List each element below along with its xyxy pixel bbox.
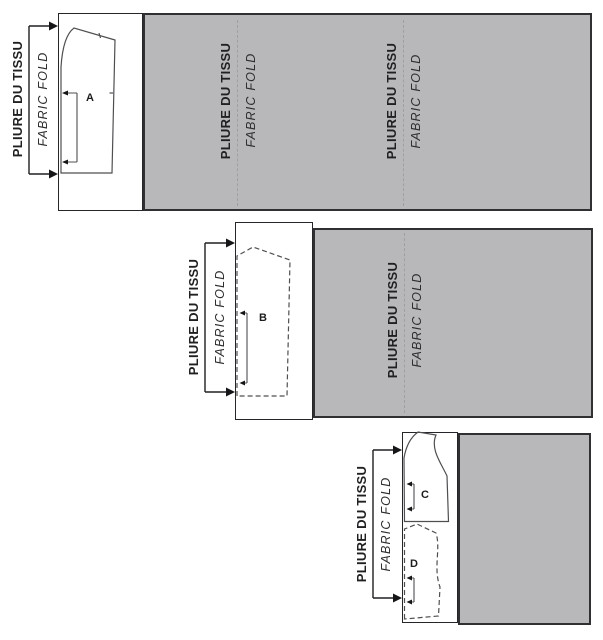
fold-arrow-icon xyxy=(393,594,402,603)
fold-arrow-icon xyxy=(49,170,58,179)
fold-bracket-2 xyxy=(205,243,226,392)
cutting-layout-diagram: PLIURE DU TISSU FABRIC FOLD PLIURE DU TI… xyxy=(0,0,603,640)
fold-label-en: FABRIC FOLD xyxy=(378,444,394,604)
fold-dash-line-1b xyxy=(403,20,404,206)
fabric-rect-1 xyxy=(143,13,592,211)
fold-panel-1 xyxy=(58,13,143,211)
fold-label-fr: PLIURE DU TISSU xyxy=(186,237,202,397)
piece-label-b: B xyxy=(256,311,270,325)
piece-label-a: A xyxy=(83,91,97,105)
fold-dash-line-2a xyxy=(404,233,405,413)
fold-arrow-icon xyxy=(226,388,235,397)
fold-label-en: FABRIC FOLD xyxy=(212,237,228,397)
fold-dash-line-1a xyxy=(237,20,238,206)
fold-panel-3 xyxy=(402,432,458,623)
fabric-rect-3 xyxy=(458,433,591,625)
fold-bracket-1 xyxy=(29,26,49,174)
fold-label-en: FABRIC FOLD xyxy=(35,19,51,179)
piece-label-c: C xyxy=(418,488,432,502)
fold-label-fr: PLIURE DU TISSU xyxy=(10,19,26,179)
fabric-rect-2 xyxy=(313,228,593,418)
fold-arrow-icon xyxy=(226,239,235,248)
fold-label-fr: PLIURE DU TISSU xyxy=(354,444,370,604)
fold-bracket-3 xyxy=(373,450,393,598)
piece-label-d: D xyxy=(407,557,421,571)
fold-panel-2 xyxy=(235,222,313,420)
fold-arrow-icon xyxy=(49,22,58,31)
fold-arrow-icon xyxy=(393,446,402,455)
